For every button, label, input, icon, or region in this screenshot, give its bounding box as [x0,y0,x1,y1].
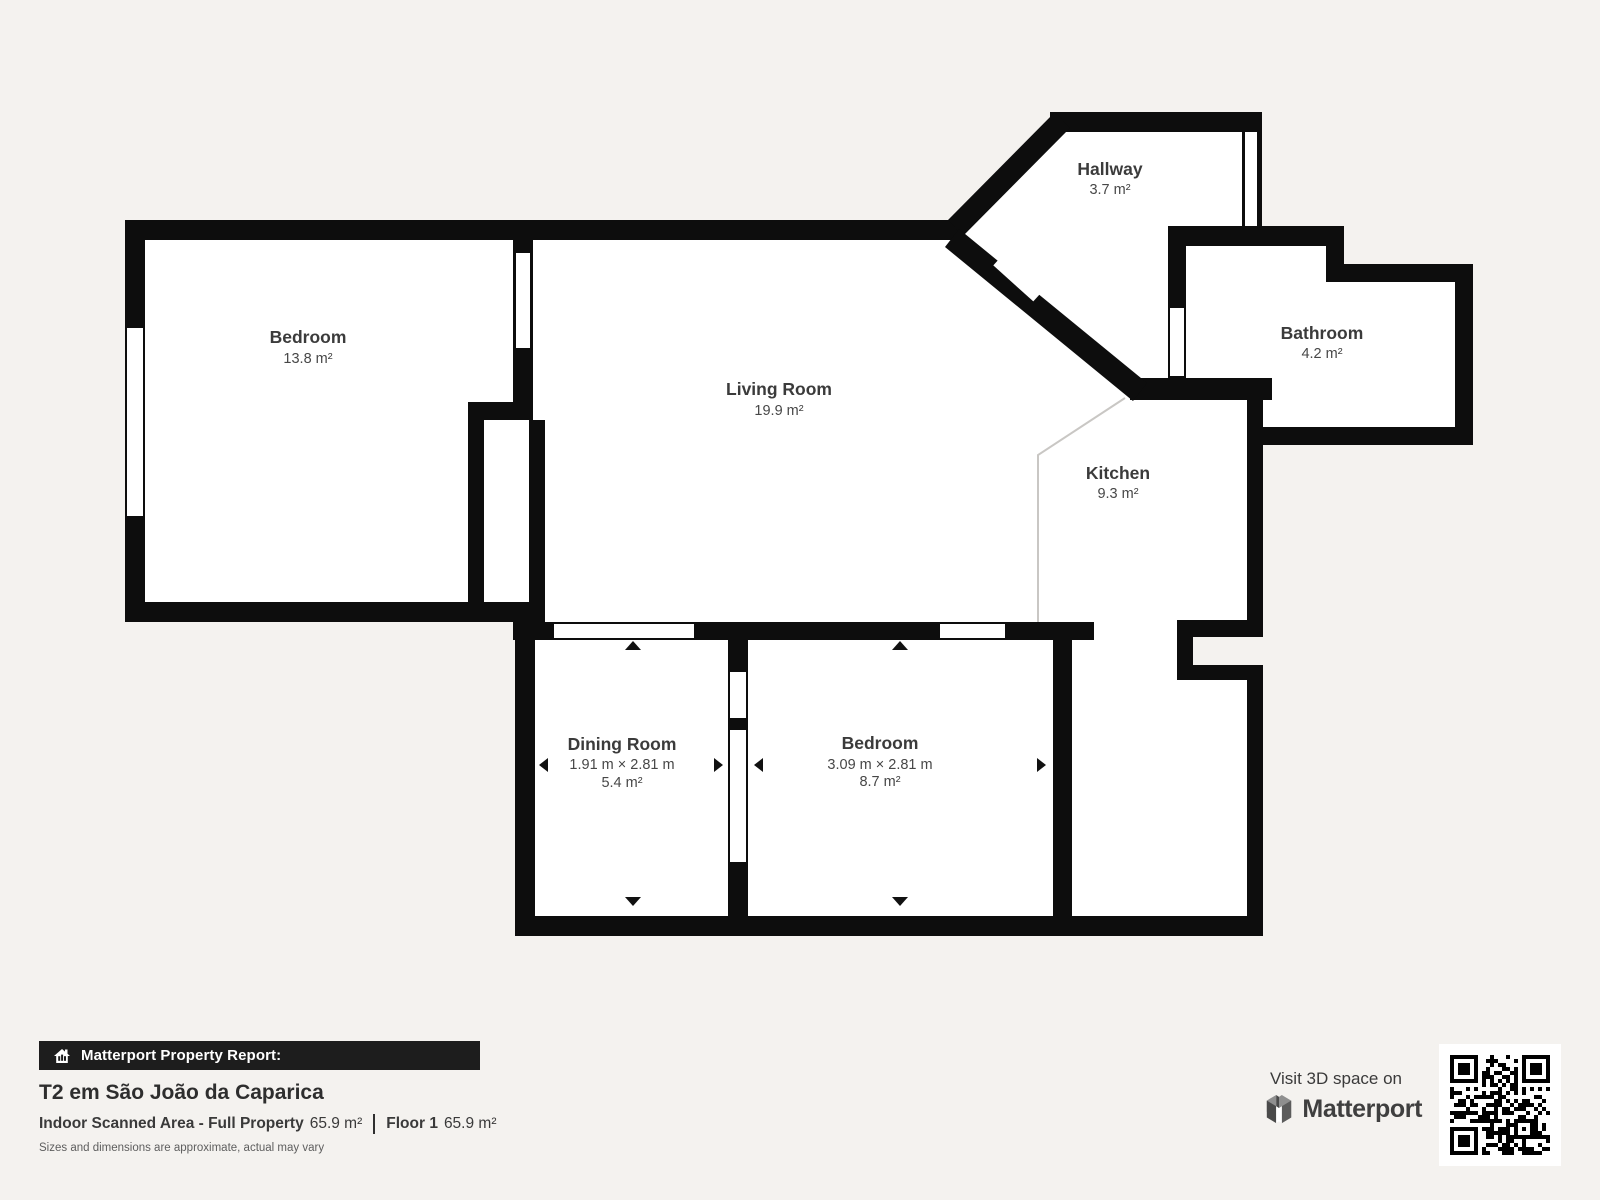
window-bedroom1-right [516,253,530,348]
qr-code-pattern [1450,1055,1550,1155]
room-name: Living Room [726,379,832,399]
matterport-logo: Matterport [1222,1092,1422,1126]
room-area: 3.7 m² [1089,182,1130,198]
room-area: 8.7 m² [859,774,900,790]
window-bedroom1-left [127,328,143,516]
page: { "canvas": { "background": "#f4f2ef", "… [0,0,1600,1200]
room-dims: 3.09 m × 2.81 m [827,757,932,773]
door-divider-upper [730,672,746,718]
room-dims: 1.91 m × 2.81 m [569,757,674,773]
room-name: Kitchen [1086,463,1150,483]
room-area: 9.3 m² [1097,486,1138,502]
room-name: Bedroom [270,327,347,347]
matterport-logo-icon [1264,1094,1294,1124]
room-area: 4.2 m² [1301,346,1342,362]
door-bathroom [1170,308,1184,376]
room-name: Bedroom [842,733,919,753]
visit-3d-text: Visit 3D space on [1254,1069,1418,1089]
property-title: T2 em São João da Caparica [39,1081,324,1105]
window-hallway [1245,132,1257,226]
opening-living-dining [554,624,694,638]
indoor-area-label: Indoor Scanned Area - Full Property [39,1115,304,1133]
room-name: Dining Room [568,734,677,754]
report-info-line: Indoor Scanned Area - Full Property 65.9… [39,1114,497,1134]
room-area: 19.9 m² [754,403,803,419]
divider [373,1114,375,1134]
matterport-wordmark: Matterport [1302,1095,1422,1124]
indoor-area-value: 65.9 m² [310,1115,363,1133]
report-header-bar: Matterport Property Report: [39,1041,480,1070]
disclaimer-text: Sizes and dimensions are approximate, ac… [39,1142,324,1154]
room-area: 13.8 m² [283,351,332,367]
floor-value: 65.9 m² [444,1115,497,1133]
qr-code [1439,1044,1561,1166]
room-name: Hallway [1077,159,1142,179]
room-area: 5.4 m² [601,775,642,791]
floor-label: Floor 1 [386,1115,438,1133]
room-name: Bathroom [1281,323,1364,343]
report-bar-label: Matterport Property Report: [81,1047,281,1064]
opening-living-bedroom2 [940,624,1005,638]
floor-plan: Bedroom 13.8 m² Living Room 19.9 m² Hall… [0,0,1600,1200]
house-icon [53,1048,71,1064]
door-divider-lower [730,730,746,862]
